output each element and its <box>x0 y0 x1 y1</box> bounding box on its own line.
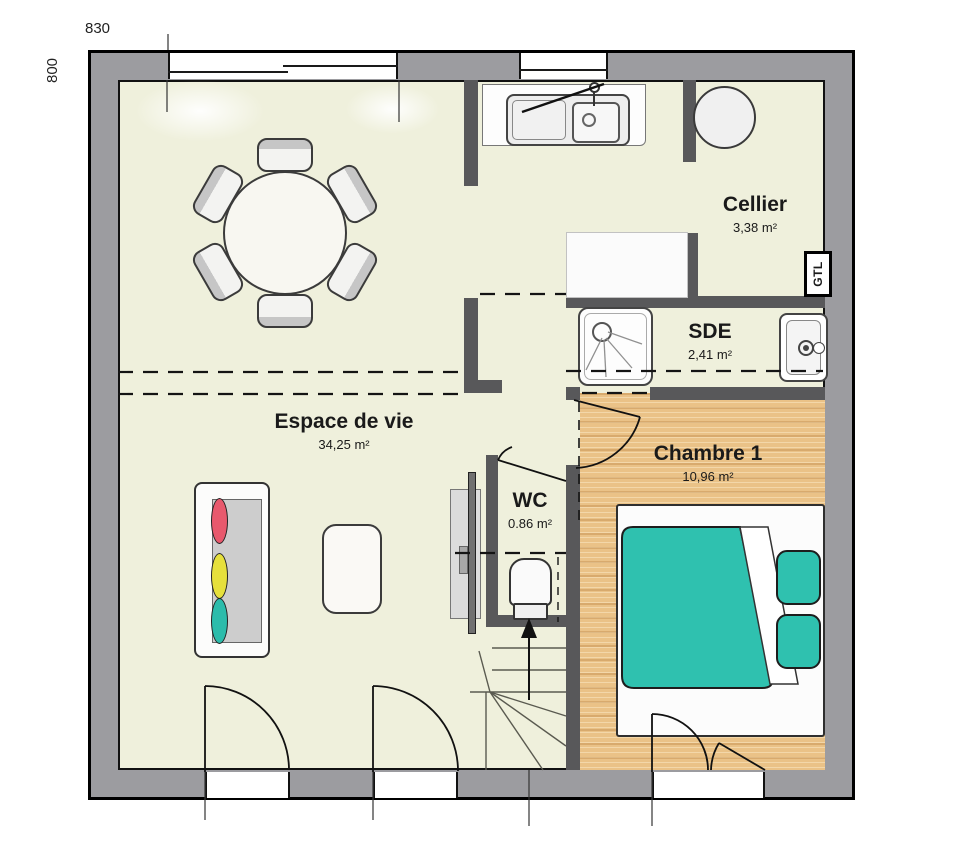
room-label-wc: WC 0.86 m² <box>508 489 552 531</box>
room-name: Espace de vie <box>275 410 414 434</box>
kitchen-worktop-block <box>566 232 688 298</box>
bed-frame <box>616 504 825 737</box>
window-light-glow <box>135 80 265 142</box>
sink-drain <box>582 113 596 127</box>
room-label-chambre1: Chambre 1 10,96 m² <box>654 442 763 484</box>
dining-chair <box>257 294 313 328</box>
room-label-sde: SDE 2,41 m² <box>688 320 732 362</box>
room-area: 34,25 m² <box>275 437 414 452</box>
room-area: 3,38 m² <box>723 220 787 235</box>
wall-kitchen-left-lower <box>464 298 478 393</box>
wall-wc-left <box>486 455 498 627</box>
room-name: Cellier <box>723 193 787 217</box>
floor-plan: 830 800 GTL <box>0 0 960 841</box>
shower-tray-inner <box>584 313 647 380</box>
sofa-cushion-teal <box>211 598 228 644</box>
tv-cabinet-handle <box>459 546 468 574</box>
tv-screen <box>468 472 476 634</box>
gtl-label: GTL <box>811 261 825 287</box>
dimension-top-width: 830 <box>85 20 110 37</box>
sofa-cushion-red <box>211 498 228 544</box>
coffee-table <box>322 524 382 614</box>
room-name: WC <box>508 489 552 513</box>
shower-drain <box>592 322 612 342</box>
water-heater <box>693 86 756 149</box>
dining-chair <box>257 138 313 172</box>
room-name: Chambre 1 <box>654 442 763 466</box>
room-label-cellier: Cellier 3,38 m² <box>723 193 787 235</box>
bedroom-window <box>652 772 765 798</box>
window-light-glow <box>345 84 440 134</box>
wall-vestibule-stub <box>464 380 502 393</box>
french-door-left <box>205 772 290 798</box>
bay-window <box>168 53 398 79</box>
room-label-espace-de-vie: Espace de vie 34,25 m² <box>275 410 414 452</box>
room-area: 10,96 m² <box>654 469 763 484</box>
toilet-tank <box>513 603 548 620</box>
dimension-left-height: 800 <box>44 58 61 83</box>
room-area: 2,41 m² <box>688 347 732 362</box>
washbasin-faucet-dot <box>803 345 809 351</box>
wall-kitchen-left-upper <box>464 80 478 186</box>
room-name: SDE <box>688 320 732 344</box>
sink-faucet <box>589 82 600 93</box>
room-area: 0.86 m² <box>508 516 552 531</box>
sink-basin <box>572 102 620 143</box>
gtl-electrical-box: GTL <box>804 251 832 297</box>
french-door-center <box>373 772 458 798</box>
toilet <box>509 558 552 606</box>
wall-bedroom-top <box>650 387 825 400</box>
wall-bedroom-left-stub <box>566 387 580 400</box>
sink-drainer <box>512 100 566 140</box>
sofa-cushion-yellow <box>211 553 228 599</box>
washbasin-knob <box>813 342 825 354</box>
kitchen-window <box>519 53 608 79</box>
